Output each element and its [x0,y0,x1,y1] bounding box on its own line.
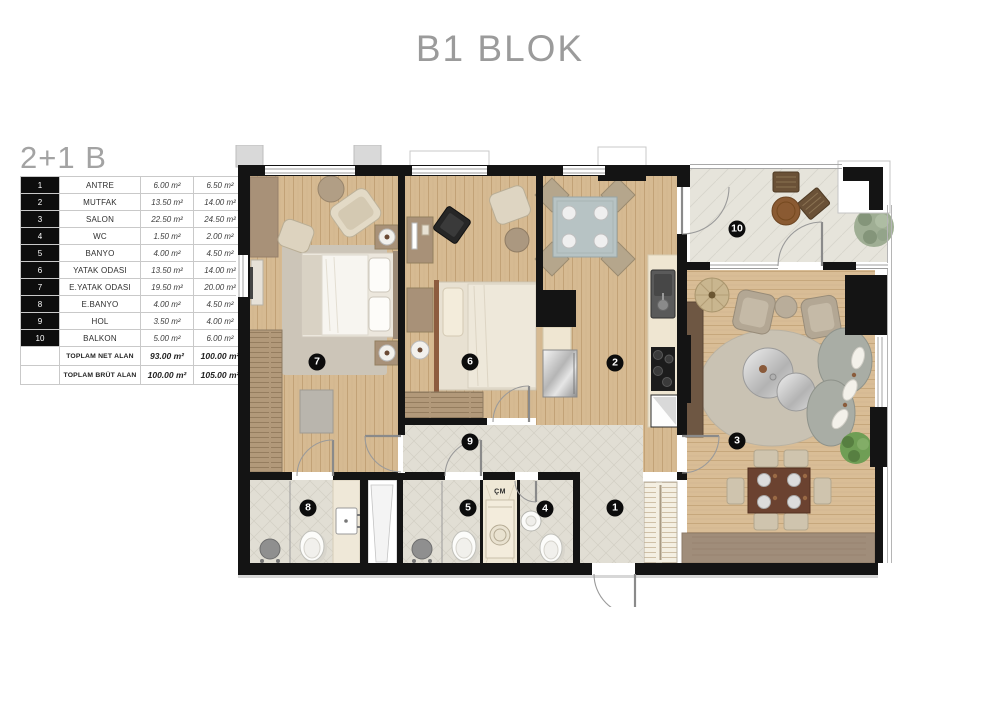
armchair [731,288,776,335]
room-name-cell: YATAK ODASI [60,262,141,279]
wall-block-kitchen [536,290,576,327]
wall-balcony-living [823,262,856,270]
column [354,145,381,167]
desk [407,217,433,263]
area-table: 1ANTRE6.00 m²6.50 m² 2MUTFAK13.50 m²14.0… [20,176,247,385]
room-name-cell: ANTRE [60,177,141,194]
plate [562,206,576,220]
room-badge-4: 4 [537,501,554,518]
wall-block-right [845,275,888,335]
room-number-cell: 3 [21,211,60,228]
table-row: 6YATAK ODASI13.50 m²14.00 m² [21,262,247,279]
total-net-label: TOPLAM NET ALAN [60,347,141,366]
empty-cell [21,347,60,366]
pendant-lamp [695,278,729,312]
window-bay [410,151,489,167]
bed [302,251,398,339]
sideboard [682,533,875,563]
shower-head [260,539,280,559]
room-name-cell: MUTFAK [60,194,141,211]
bed [434,280,536,392]
hall-floor [403,425,643,472]
net-area-cell: 1.50 m² [141,228,194,245]
net-area-cell: 4.00 m² [141,296,194,313]
plant [840,432,872,464]
wall-bath-divider [360,480,368,567]
plate [758,496,771,509]
table-row: 4WC1.50 m²2.00 m² [21,228,247,245]
net-area-cell: 4.00 m² [141,245,194,262]
room-name-cell: BALKON [60,330,141,347]
exterior-wall-left [238,165,250,575]
wall-hall-baths [250,472,292,480]
shower-head [412,539,432,559]
wall-bedroom-kitchen [536,165,543,292]
closet [250,177,278,257]
total-net-value: 93.00 m² [141,347,194,366]
chair [784,513,808,530]
wardrobe [403,392,483,418]
room-name-cell: E.BANYO [60,296,141,313]
total-gross-row: TOPLAM BRÜT ALAN100.00 m²105.00 m² [21,366,247,385]
room-badge-5: 5 [460,500,477,517]
wall-bedrooms [398,165,405,435]
room-badge-3: 3 [729,433,746,450]
room-name-cell: WC [60,228,141,245]
stove [651,347,675,391]
room-name-cell: HOL [60,313,141,330]
net-area-cell: 5.00 m² [141,330,194,347]
plate [562,234,576,248]
room-badge-7: 7 [309,354,326,371]
floor-plan-drawing [230,145,900,607]
washing-machine-label: ÇM [494,489,506,496]
net-area-cell: 6.00 m² [141,177,194,194]
entry-floor [580,472,643,563]
room-number-cell: 1 [21,177,60,194]
net-area-cell: 22.50 m² [141,211,194,228]
chair [727,478,744,504]
wall-kitchen-living [677,234,687,435]
room-number-cell: 7 [21,279,60,296]
wall-right-thin [875,467,883,563]
room-number-cell: 10 [21,330,60,347]
room-name-cell: E.YATAK ODASI [60,279,141,296]
decor [759,365,767,373]
room-number-cell: 4 [21,228,60,245]
room-number-cell: 9 [21,313,60,330]
room-number-cell: 5 [21,245,60,262]
net-area-cell: 13.50 m² [141,262,194,279]
page-title: B1 BLOK [0,28,1000,70]
total-net-row: TOPLAM NET ALAN93.00 m²100.00 m² [21,347,247,366]
wardrobe [248,330,282,472]
entrance-door [594,574,635,607]
chair [754,450,778,467]
total-gross-label: TOPLAM BRÜT ALAN [60,366,141,385]
cabinet [543,327,571,350]
page: B1 BLOK 2+1 B 1ANTRE6.00 m²6.50 m² 2MUTF… [0,0,1000,707]
room-name-cell: SALON [60,211,141,228]
table-row: 1ANTRE6.00 m²6.50 m² [21,177,247,194]
room-badge-8: 8 [300,500,317,517]
plate [758,474,771,487]
room-number-cell: 2 [21,194,60,211]
unit-type-label: 2+1 B [20,140,107,176]
room-number-cell: 6 [21,262,60,279]
table-row: 7E.YATAK ODASI19.50 m²20.00 m² [21,279,247,296]
net-area-cell: 19.50 m² [141,279,194,296]
plate [788,496,801,509]
wall-shadow [238,575,878,578]
balcony-table [772,197,800,225]
kitchen-table [553,197,617,257]
wall-block-right [870,407,888,467]
pouf [505,228,529,252]
plate [594,206,608,220]
room-badge-10: 10 [729,221,746,238]
room-badge-1: 1 [607,500,624,517]
plate [788,474,801,487]
table-row: 2MUTFAK13.50 m²14.00 m² [21,194,247,211]
wall-bedroom-hall [403,418,487,425]
net-area-cell: 3.50 m² [141,313,194,330]
chair [784,450,808,467]
chair [754,513,778,530]
table-row: 10BALKON5.00 m²6.00 m² [21,330,247,347]
chair [814,478,831,504]
wall-balcony-living [687,262,710,270]
exterior-wall-bottom [635,563,878,575]
balcony-railing [690,165,842,169]
table-row: 3SALON22.50 m²24.50 m² [21,211,247,228]
table-row: 5BANYO4.00 m²4.50 m² [21,245,247,262]
column [236,145,263,167]
pouf [318,176,344,202]
window-bay [598,147,646,167]
empty-cell [21,366,60,385]
sink [651,270,675,318]
dresser [407,288,433,332]
room-number-cell: 8 [21,296,60,313]
side-table [775,296,797,318]
net-area-cell: 13.50 m² [141,194,194,211]
total-gross-value: 100.00 m² [141,366,194,385]
area-table-body: 1ANTRE6.00 m²6.50 m² 2MUTFAK13.50 m²14.0… [21,177,247,385]
dining-table [748,468,810,513]
tv [250,267,253,299]
glass-facade [888,205,892,563]
floor-plan: 1 2 3 4 5 6 7 8 9 10 ÇM [230,145,900,607]
room-badge-6: 6 [462,354,479,371]
refrigerator [543,350,577,397]
room-badge-9: 9 [462,434,479,451]
room-name-cell: BANYO [60,245,141,262]
table-row: 8E.BANYO4.00 m²4.50 m² [21,296,247,313]
room-badge-2: 2 [607,355,624,372]
table-row: 9HOL3.50 m²4.00 m² [21,313,247,330]
plate [594,234,608,248]
exterior-wall-bottom [238,563,592,575]
column [598,165,646,181]
bench [300,390,333,433]
